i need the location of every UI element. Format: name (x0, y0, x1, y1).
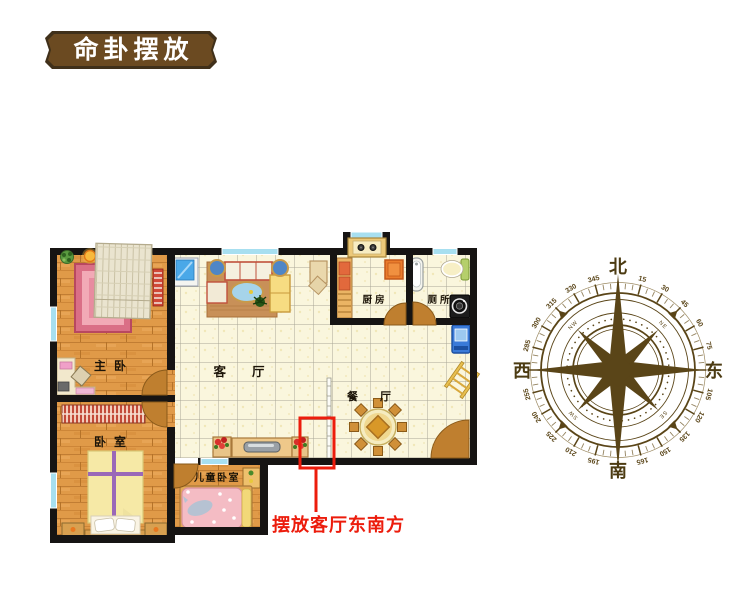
single-bed (85, 451, 146, 539)
double-bed-blanket (94, 243, 152, 318)
kids-dresser (243, 468, 260, 488)
svg-text:75: 75 (704, 341, 713, 350)
label-bedroom: 卧室 (94, 434, 134, 449)
label-master-bedroom: 主卧 (94, 358, 134, 373)
flower-pot (213, 437, 231, 457)
svg-text:285: 285 (523, 339, 533, 352)
compass: 1530456075105120135150165195210225240255… (498, 238, 738, 502)
fridge-cabinet (337, 258, 352, 318)
kids-bed (180, 486, 252, 530)
svg-text:105: 105 (703, 388, 713, 401)
leader-line (315, 468, 318, 512)
stove (385, 260, 403, 279)
side-table (209, 260, 225, 276)
floorplan: 主卧 卧室 客厅 餐厅 厨房 厕所 儿童卧室 (48, 230, 484, 560)
label-kids-bedroom: 儿童卧室 (193, 471, 240, 484)
wall-stripe-curtain (153, 269, 163, 306)
svg-text:SE: SE (657, 409, 668, 420)
plant (61, 251, 74, 264)
cardinal-east: 东 (705, 360, 723, 381)
label-living-room: 客厅 (212, 364, 290, 379)
label-toilet: 厕所 (427, 294, 452, 306)
tv-cabinet (172, 258, 198, 286)
svg-text:345: 345 (587, 275, 600, 285)
label-kitchen: 厨房 (362, 294, 387, 306)
annotation-label: 摆放客厅东南方 (272, 511, 405, 537)
title-badge-face: 命卦摆放 (48, 34, 214, 66)
dining-table (350, 399, 407, 456)
page-title: 命卦摆放 (68, 38, 193, 63)
cardinal-west: 西 (513, 361, 531, 381)
svg-text:15: 15 (638, 275, 647, 284)
cardinal-south: 南 (609, 460, 627, 481)
tv-stand (232, 438, 292, 457)
label-dining-room: 餐厅 (346, 389, 413, 403)
svg-text:255: 255 (523, 388, 533, 401)
washing-machine (450, 295, 470, 318)
svg-text:165: 165 (636, 455, 649, 465)
svg-text:NE: NE (657, 320, 668, 331)
svg-text:30: 30 (660, 284, 670, 294)
svg-text:195: 195 (587, 455, 600, 465)
svg-text:60: 60 (694, 318, 704, 328)
water-dispenser (452, 325, 470, 353)
cardinal-north: 北 (609, 257, 627, 277)
title-badge: 命卦摆放 (45, 31, 217, 69)
side-table (272, 260, 288, 276)
kitchen-sink-unit (348, 238, 386, 257)
